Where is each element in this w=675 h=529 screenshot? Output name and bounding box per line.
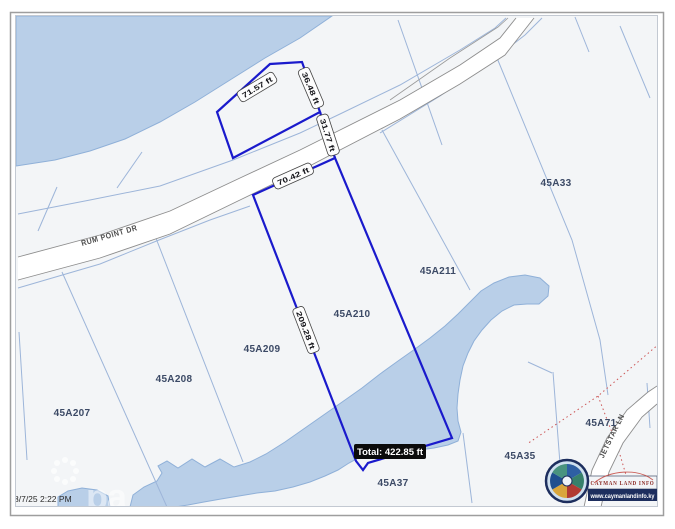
parcel-label-45a209: 45A209 (244, 344, 281, 355)
map-viewport[interactable]: RUM POINT DR JETSTAR LN pa 71.57 ft (0, 0, 675, 529)
turtle-medallion-icon (546, 460, 588, 502)
map-application: RUM POINT DR JETSTAR LN pa 71.57 ft (0, 0, 675, 529)
parcel-label-45a211: 45A211 (420, 266, 456, 277)
logo-org-text: CAYMAN LAND INFO (591, 480, 655, 487)
parcel-label-45a35: 45A35 (505, 451, 536, 462)
parcel-label-45a37: 45A37 (378, 478, 409, 489)
parcel-label-45a33: 45A33 (541, 178, 572, 189)
timestamp: 8/7/25 2:22 PM (14, 494, 72, 504)
parcel-label-45a71: 45A71 (586, 418, 617, 429)
watermark-text: pa (86, 476, 128, 517)
parcel-label-45a208: 45A208 (156, 374, 193, 385)
measurement-total-tooltip: Total: 422.85 ft (354, 444, 426, 459)
measurement-total-text: Total: 422.85 ft (357, 447, 423, 457)
parcel-label-45a207: 45A207 (54, 408, 91, 419)
logo-url-text[interactable]: www.caymanlandinfo.ky (590, 493, 655, 500)
map-canvas[interactable]: RUM POINT DR JETSTAR LN pa 71.57 ft (14, 16, 666, 517)
parcel-label-45a210: 45A210 (334, 309, 371, 320)
